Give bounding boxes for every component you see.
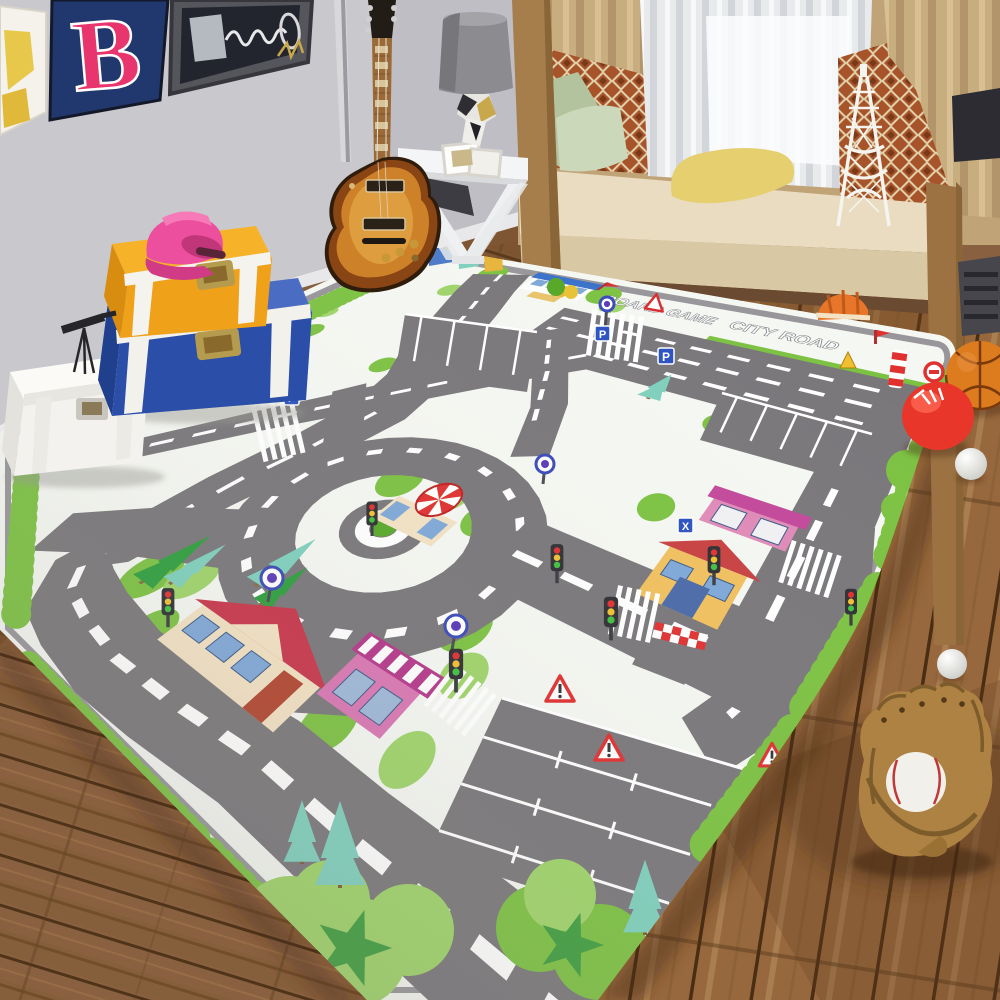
svg-text:B: B [68, 0, 146, 114]
